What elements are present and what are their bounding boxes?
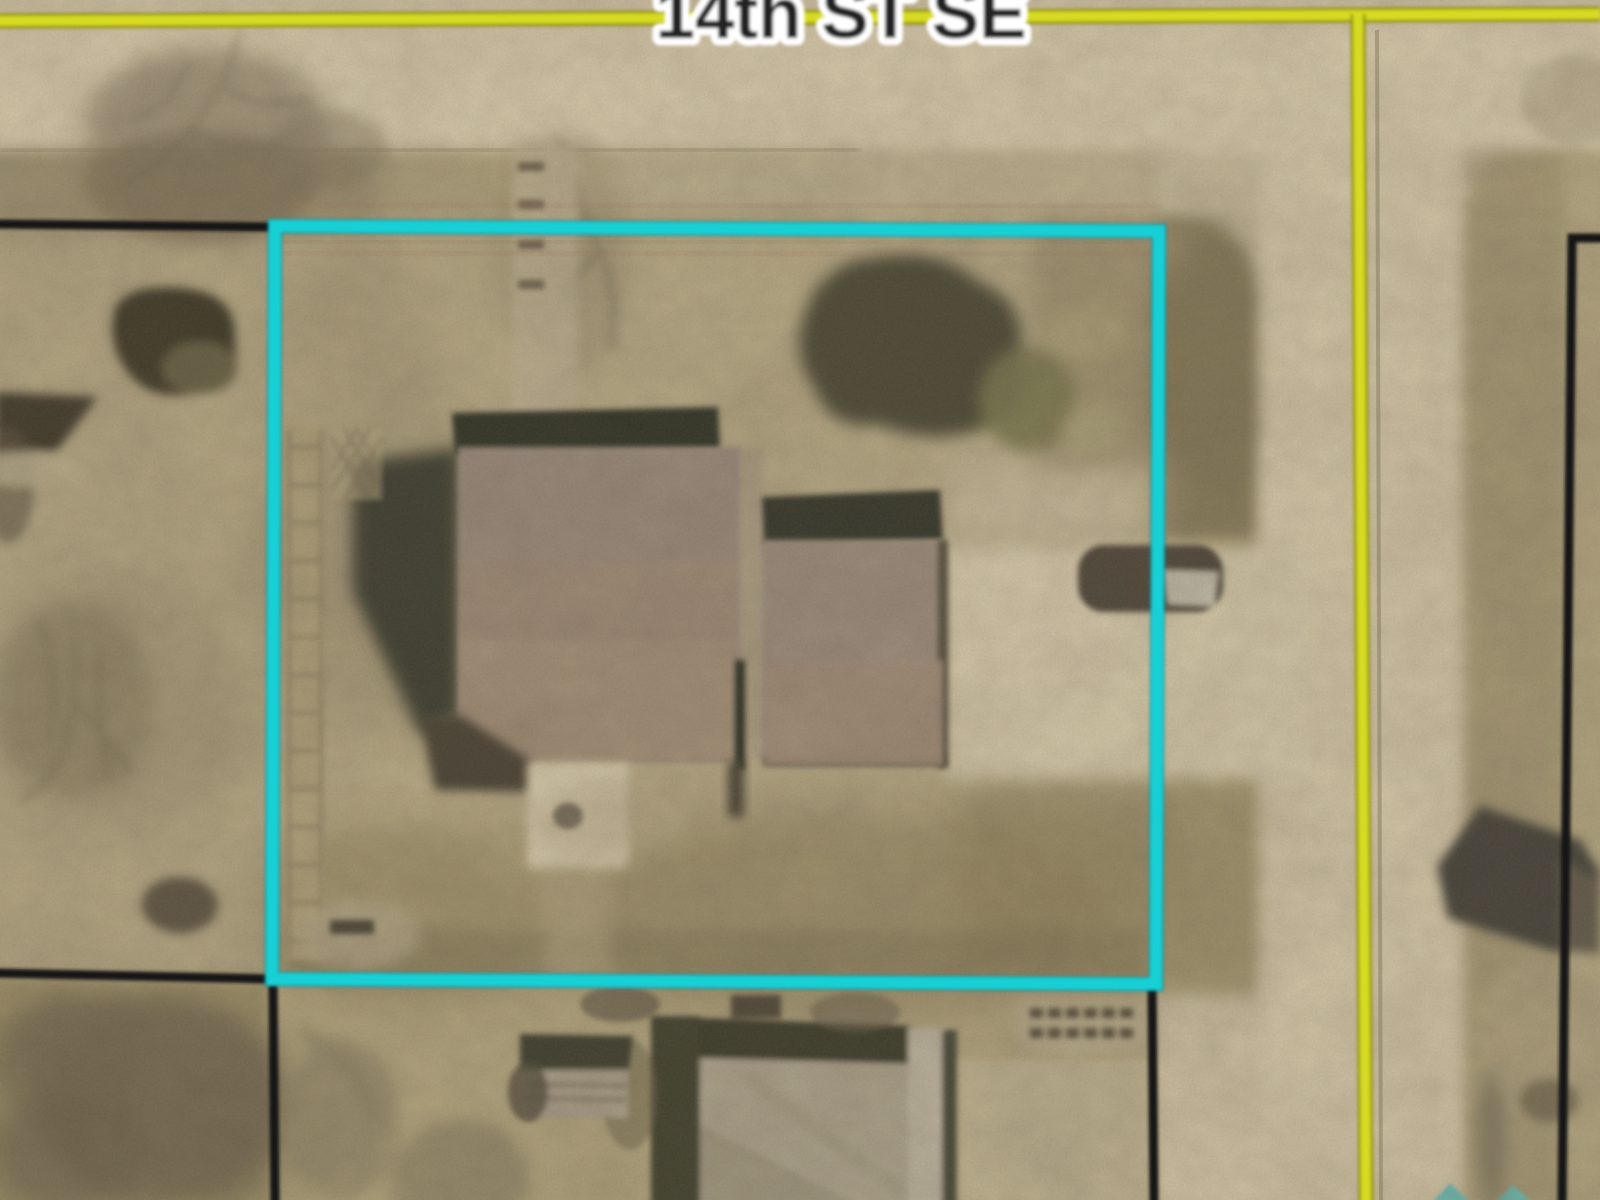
svg-text:14th ST SE: 14th ST SE xyxy=(656,0,1027,54)
